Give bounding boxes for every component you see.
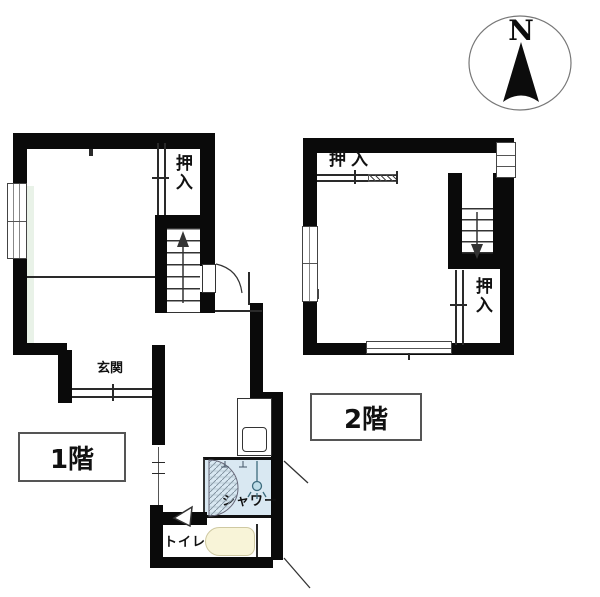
floor2-label: 2階 — [344, 399, 388, 436]
floor-plan-canvas: 押入 玄関 シャワー トイレ 押入 押入 1階 2階 N — [0, 0, 600, 597]
f2-left-window — [302, 226, 318, 302]
f2-closet2-door-line-a — [455, 270, 457, 345]
floor1-label: 1階 — [50, 439, 94, 476]
kitchen-sink — [242, 427, 267, 452]
f1-left-window — [7, 183, 27, 259]
f1-entrance-door-tick — [112, 384, 114, 401]
f1-shower-label: シャワー — [222, 495, 278, 509]
hall-door-diagonal-upper — [284, 461, 308, 483]
f1-left-wall-lower — [13, 256, 27, 346]
f1-left-window-divider — [8, 221, 26, 222]
compass: N — [469, 14, 571, 110]
f1-closet-label: 押入 — [172, 154, 190, 192]
f1-hall-vline — [248, 272, 250, 305]
f2-right-window-divider-a — [497, 155, 515, 156]
f1-room-divider-line — [27, 276, 155, 278]
f1-stair-door-arc — [216, 264, 242, 293]
f1-stair-door-leaf — [202, 264, 216, 293]
f1-closet-door-line-a — [157, 143, 159, 215]
f1-closet-bottom-wall — [155, 215, 215, 228]
f1-stair-left-wall — [155, 228, 167, 313]
f2-closet-door-hatch — [368, 174, 397, 182]
f1-stair-treads — [167, 228, 200, 313]
compass-north-label: N — [508, 14, 534, 47]
f2-closet-right-tick — [396, 171, 398, 184]
f1-right-wall-lower — [271, 395, 283, 560]
f2-bottom-window-divider — [367, 348, 451, 349]
f1-bath-door-tick-a — [152, 462, 165, 463]
f1-bath-door-tick-b — [152, 473, 165, 474]
f2-closet2-door-tick — [450, 304, 467, 306]
f2-stair-cap-wall — [448, 253, 514, 269]
north-needle-icon — [503, 42, 539, 102]
f2-left-window-divider — [303, 263, 317, 264]
f1-room-tint — [27, 186, 34, 343]
f1-bath-door-line — [158, 447, 159, 505]
f2-bottom-window-tick — [408, 353, 410, 360]
toilet-bathtub — [205, 527, 255, 556]
f2-closet2-door-line-b — [462, 270, 464, 345]
hall-door-diagonal-lower — [284, 558, 310, 588]
f1-closet-door-tick — [152, 177, 169, 179]
f1-closet-door-line-b — [164, 143, 166, 215]
floor2-label-box: 2階 — [310, 393, 422, 441]
f2-left-window-mullion — [309, 227, 310, 301]
f1-hall-line — [215, 310, 262, 312]
f2-stair-treads — [462, 208, 493, 254]
f1-bath-bottom-wall — [150, 557, 273, 568]
f1-entrance-right-wall — [152, 345, 165, 445]
f2-closet-bottom-label: 押入 — [472, 277, 490, 315]
f1-entrance-left-wall — [58, 350, 72, 403]
f2-right-window-divider-b — [497, 166, 515, 167]
f1-left-wall-upper — [13, 133, 27, 186]
f1-hall-wall-vertical — [250, 303, 263, 395]
f2-closet-door-tick — [354, 170, 356, 184]
floor1-label-box: 1階 — [18, 432, 126, 482]
compass-circle — [469, 16, 571, 110]
f2-stair-left-wall — [448, 173, 462, 265]
f1-bath-corner-wall — [150, 512, 207, 525]
f1-top-wall-tick — [89, 149, 93, 156]
f1-toilet-divider-line — [256, 524, 258, 557]
f2-closet-top-label: 押入 — [329, 152, 373, 170]
f2-left-wall-upper — [303, 138, 317, 228]
f1-right-wall — [200, 133, 215, 266]
f2-right-window — [496, 142, 516, 178]
f1-top-wall — [13, 133, 215, 149]
f1-right-wall-stub — [200, 292, 215, 313]
f1-entrance-label: 玄関 — [97, 362, 123, 376]
f1-toilet-label: トイレ — [164, 536, 206, 550]
